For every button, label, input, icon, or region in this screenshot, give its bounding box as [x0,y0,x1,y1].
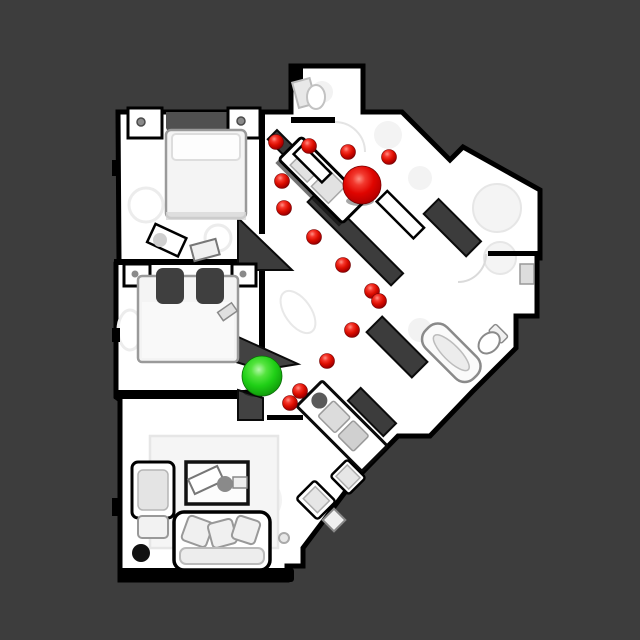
wall-screw [240,271,247,278]
waypoint-dot-6 [277,201,292,216]
waypoint-dot-3 [341,145,356,160]
pillow-dark [156,268,184,304]
scene-canvas[interactable] [0,0,640,640]
bedroom-middle [124,264,256,362]
waypoint-dot-1 [269,135,284,150]
goal-sphere [343,166,381,204]
floor-blob [132,544,150,562]
waypoint-dot-5 [275,174,290,189]
pillow-dark [196,268,224,304]
wall-screw [137,118,145,126]
toilet-vestibule [307,85,325,109]
waypoint-dot-13 [293,384,308,399]
closet-shelf [520,264,534,284]
waypoint-dot-4 [382,150,397,165]
ottoman [138,516,168,538]
start-sphere [242,356,282,396]
waypoint-dot-14 [283,396,298,411]
waypoint-dot-8 [336,258,351,273]
waypoint-dot-10 [372,294,387,309]
wall-screw [132,271,139,278]
scene-viewport[interactable] [0,0,640,640]
table-object [217,476,233,492]
waypoint-dot-11 [345,323,360,338]
waypoint-dot-2 [302,139,317,154]
waypoint-dot-7 [307,230,322,245]
floor-lamp [279,533,289,543]
wall-screw [237,117,245,125]
waypoint-dot-12 [320,354,335,369]
